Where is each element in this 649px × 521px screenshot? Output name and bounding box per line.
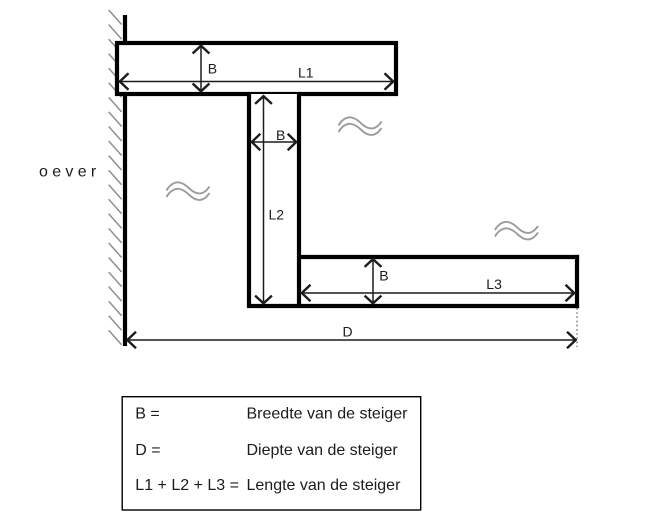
svg-text:B: B: [276, 127, 285, 143]
svg-text:Lengte van de steiger: Lengte van de steiger: [247, 477, 402, 494]
svg-text:B: B: [379, 268, 388, 284]
svg-text:L1 + L2 + L3 =: L1 + L2 + L3 =: [135, 477, 239, 494]
svg-text:L1: L1: [298, 65, 314, 81]
svg-text:D =: D =: [135, 442, 160, 459]
svg-text:D: D: [343, 323, 353, 339]
svg-text:Diepte van de steiger: Diepte van de steiger: [247, 442, 399, 459]
svg-text:L2: L2: [269, 206, 285, 222]
svg-text:L3: L3: [486, 276, 502, 292]
svg-text:B: B: [208, 60, 217, 76]
svg-text:Breedte van de steiger: Breedte van de steiger: [247, 406, 409, 423]
svg-text:oever: oever: [39, 164, 101, 181]
svg-text:B =: B =: [135, 406, 159, 423]
